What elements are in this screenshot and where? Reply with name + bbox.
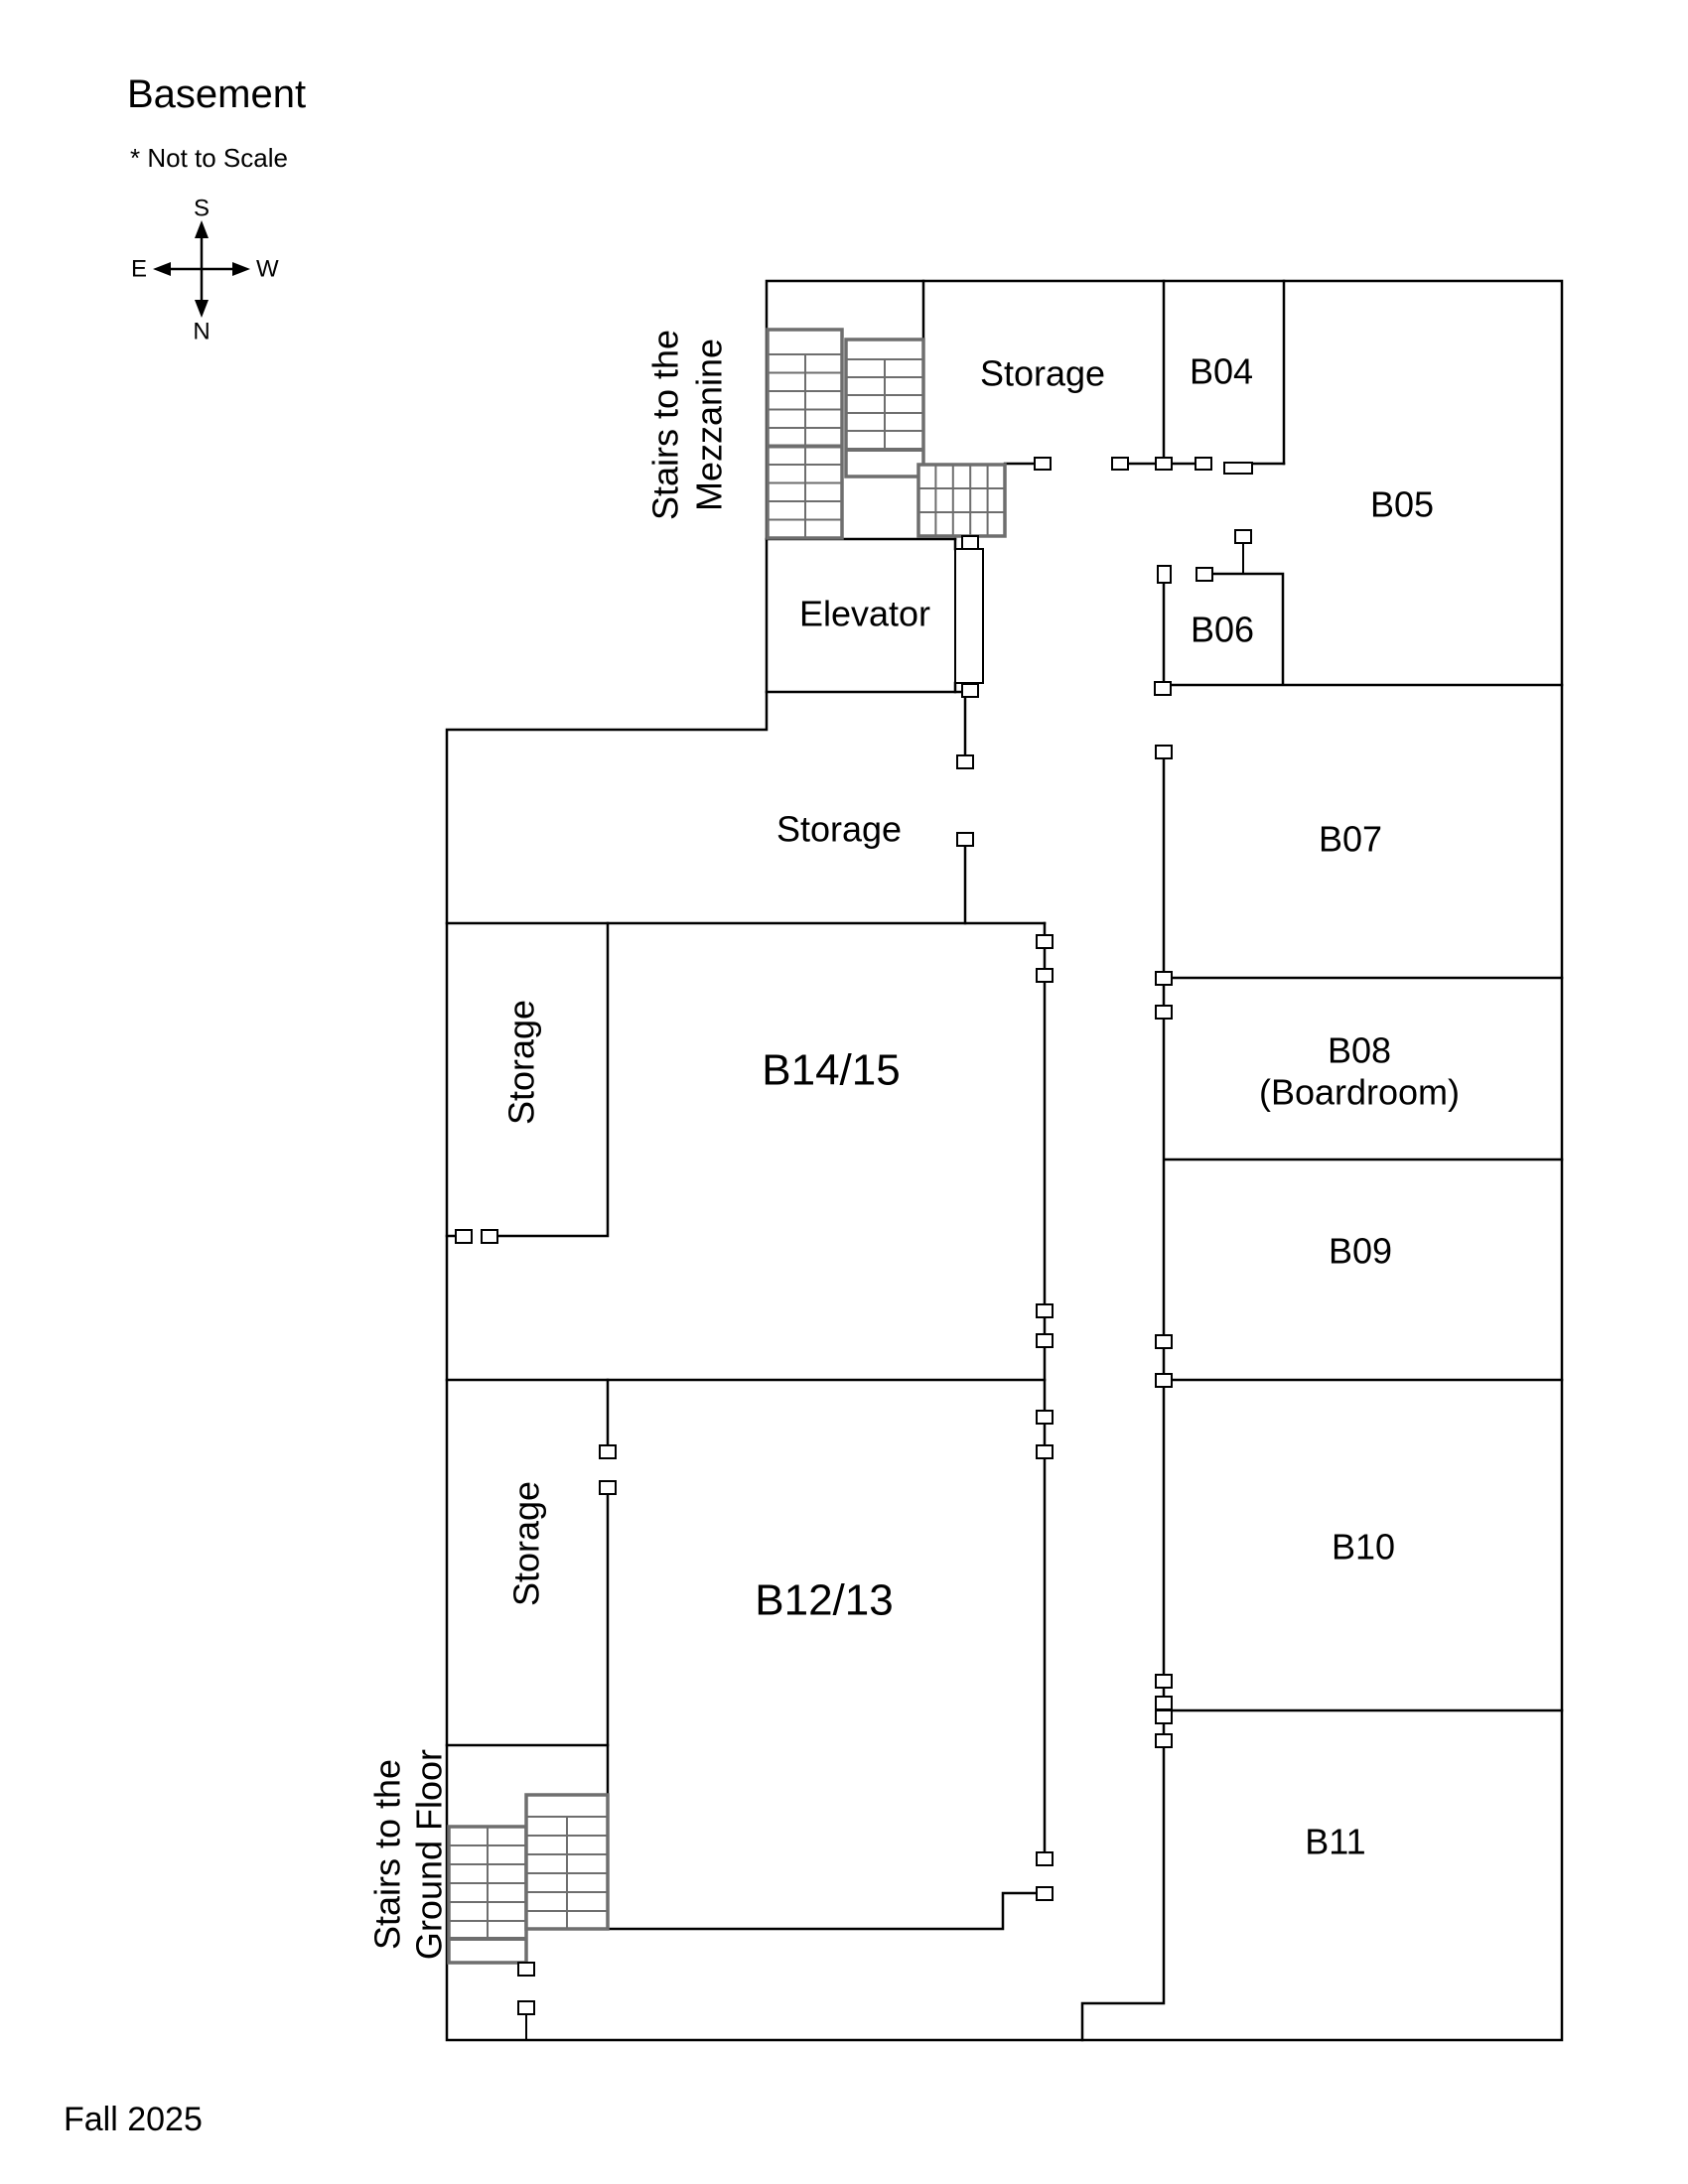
label-storage-b1213: Storage	[506, 1481, 547, 1606]
label-b10: B10	[1332, 1527, 1395, 1568]
door-marker	[600, 1445, 616, 1458]
door-marker	[1235, 530, 1251, 543]
door-marker	[962, 536, 978, 549]
door-marker	[1037, 969, 1053, 982]
door-marker	[1156, 1697, 1172, 1709]
door-marker	[1037, 1304, 1053, 1317]
compass-arrow-up-icon	[195, 220, 209, 238]
compass-west: W	[256, 256, 279, 283]
door-marker	[962, 684, 978, 697]
floor-plan-page: Basement * Not to Scale Fall 2025 S N E …	[0, 0, 1688, 2184]
door-marker	[1156, 1734, 1172, 1747]
compass-arrow-left-icon	[153, 262, 171, 276]
door-marker	[518, 2001, 534, 2014]
label-storage-b1415: Storage	[501, 1000, 542, 1125]
door-marker	[600, 1481, 616, 1494]
door-marker	[1156, 1006, 1172, 1019]
door-marker	[1156, 1374, 1172, 1387]
door-leaf-marker	[1224, 463, 1252, 474]
compass-arrow-right-icon	[232, 262, 250, 276]
door-marker	[1156, 746, 1172, 758]
label-stairs-ground-line1: Stairs to the	[367, 1759, 408, 1950]
stairs-to-ground-floor	[449, 1795, 608, 1963]
label-b09: B09	[1329, 1231, 1392, 1272]
label-b07: B07	[1319, 819, 1382, 860]
footer-date: Fall 2025	[64, 2101, 203, 2138]
stair-winder-grid	[918, 465, 1005, 536]
label-stairs-mezzanine-line2: Mezzanine	[689, 339, 730, 511]
room-labels: Stairs to the Mezzanine Storage B04 B05 …	[367, 330, 1461, 1960]
compass-rose: S N E W	[131, 196, 279, 345]
compass-arrow-down-icon	[195, 300, 209, 318]
door-marker	[1037, 1887, 1053, 1900]
door-marker	[482, 1230, 497, 1243]
door-marker	[1035, 458, 1051, 470]
label-storage-top: Storage	[980, 353, 1105, 394]
door-marker	[518, 1963, 534, 1976]
door-marker	[1156, 458, 1172, 470]
door-marker	[957, 755, 973, 768]
door-marker	[1037, 1852, 1053, 1865]
label-b06: B06	[1191, 610, 1254, 650]
label-b1415: B14/15	[762, 1046, 900, 1095]
compass-east: E	[131, 256, 147, 283]
door-marker	[456, 1230, 472, 1243]
label-b11: B11	[1305, 1822, 1365, 1862]
page-title: Basement	[127, 72, 306, 116]
compass-north: N	[193, 319, 210, 345]
door-marker	[1037, 935, 1053, 948]
label-b08-line2: (Boardroom)	[1259, 1072, 1460, 1113]
door-marker	[1156, 1710, 1172, 1723]
label-stairs-mezzanine-line1: Stairs to the	[645, 330, 686, 520]
door-marker	[1155, 682, 1171, 695]
door-marker	[957, 833, 973, 846]
label-b04: B04	[1190, 351, 1253, 392]
door-marker	[1037, 1334, 1053, 1347]
door-marker	[1196, 458, 1211, 470]
door-marker	[1037, 1411, 1053, 1424]
label-storage-mid: Storage	[776, 809, 902, 850]
door-marker	[1156, 1335, 1172, 1348]
elevator-door-panel	[955, 549, 983, 683]
label-b05: B05	[1370, 484, 1434, 525]
door-marker	[1196, 568, 1212, 581]
label-b1213: B12/13	[755, 1576, 893, 1625]
floor-plan-canvas: Basement * Not to Scale Fall 2025 S N E …	[0, 0, 1688, 2184]
door-marker	[1156, 1675, 1172, 1688]
door-marker	[1158, 566, 1171, 583]
stairs-to-mezzanine	[768, 330, 1005, 538]
door-marker	[1037, 1445, 1053, 1458]
scale-note: * Not to Scale	[130, 143, 288, 173]
compass-south: S	[194, 196, 210, 222]
label-b08-line1: B08	[1328, 1030, 1391, 1071]
door-marker	[1112, 458, 1128, 470]
door-marker	[1156, 972, 1172, 985]
label-stairs-ground-line2: Ground Floor	[409, 1749, 450, 1960]
label-elevator: Elevator	[799, 594, 930, 634]
